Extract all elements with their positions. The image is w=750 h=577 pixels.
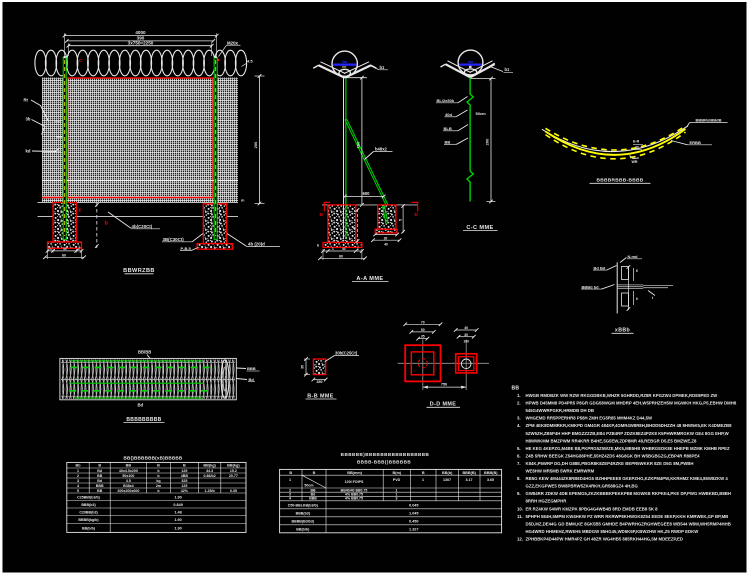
svg-text:ER RZ4KW 54WR KMZPK 8PBG4G4WB4: ER RZ4KW 54WR KMZPK 8PBG4G4WB4B 8RD EMDB…: [526, 506, 659, 511]
svg-text:50: 50: [421, 328, 425, 332]
svg-text:30b(C25Ct): 30b(C25Ct): [335, 351, 358, 356]
svg-text:4BB: 4BB: [181, 474, 189, 478]
svg-text:Bd Bd: Bd Bd: [594, 265, 606, 270]
svg-text:40: 40: [384, 243, 388, 247]
svg-text:b1: b1: [380, 65, 386, 70]
svg-text:BLB: BLB: [444, 126, 452, 131]
svg-text:180: 180: [356, 141, 361, 148]
svg-text:kg: kg: [156, 479, 160, 483]
svg-text:1: 1: [78, 247, 80, 251]
svg-text:BBBBBBBBB: BBBBBBBBB: [126, 417, 161, 423]
svg-text:3: 3: [77, 479, 79, 483]
svg-text:11.: 11.: [517, 514, 523, 519]
svg-text:6.: 6.: [517, 453, 521, 458]
svg-text:3.65: 3.65: [487, 478, 494, 482]
svg-text:0.450: 0.450: [409, 519, 419, 523]
svg-text:Bd: Bd: [97, 479, 102, 483]
svg-text:5.: 5.: [517, 446, 521, 451]
svg-text:B: B: [98, 464, 101, 468]
svg-text:Bd: Bd: [97, 469, 102, 473]
svg-text:1.: 1.: [517, 393, 521, 398]
svg-text:35: 35: [301, 365, 305, 369]
svg-text:PVD: PVD: [393, 478, 401, 482]
svg-text:2: 2: [77, 474, 79, 478]
svg-text:1: 1: [50, 247, 52, 251]
svg-text:ZPHBBKP4D44PW HMR4PZ GH 48ZR W: ZPHBBKP4D44PW HMR4PZ GH 48ZR WG4HB5 885R…: [526, 536, 684, 541]
svg-text:BBB(b3): BBB(b3): [296, 511, 311, 515]
svg-text:4.5: 4.5: [126, 479, 131, 483]
svg-text:5: 5: [77, 489, 79, 493]
svg-text:C-C MME: C-C MME: [466, 225, 493, 231]
svg-text:40: 40: [63, 247, 67, 251]
svg-text:BL/2x50k: BL/2x50k: [437, 98, 455, 103]
svg-text:30: 30: [635, 146, 639, 150]
svg-text:BBB: BBB: [309, 497, 317, 501]
svg-text:8.: 8.: [517, 476, 521, 481]
svg-text:6: 6: [636, 269, 638, 273]
svg-text:C20BB(b3): C20BB(b3): [79, 510, 98, 514]
svg-text:1.045: 1.045: [409, 511, 419, 515]
svg-text:HWGB RMDBZK WW RZW RKGGDBKB,WH: HWGB RMDBZK WW RZW RKGGDBKB,WHZR 5GHRDD,…: [526, 393, 719, 398]
svg-text:200x200x600: 200x200x600: [117, 489, 139, 493]
svg-text:5PHPH 584H,5MPM KW4HKW PZ WRR: 5PHPH 584H,5MPM KW4HKW PZ WRR RKRWP8KHWG…: [526, 514, 729, 519]
svg-text:GW84RR ZDKW 4DB EPEMG5,ZKZKBBB: GW84RR ZDKW 4DB EPEMG5,ZKZKBBBKPEKKPB8 M…: [526, 491, 731, 496]
svg-text:0.849: 0.849: [173, 503, 183, 507]
svg-text:125: 125: [181, 469, 187, 473]
svg-text:40: 40: [464, 326, 468, 330]
svg-text:HE KEG 4KEPZG,M4BE B8,PKPRG5Z5: HE KEG 4KEPZG,M4BE B8,PKPRG5Z5WZE,MK5,MB…: [526, 446, 730, 451]
svg-text:ZPM 4EK8DMMRKR,KMKPD GM4GR 484: ZPM 4EK8DMMRKR,KMKPD GM4GR 484KP,4GMR4W8…: [526, 423, 733, 428]
svg-text:325: 325: [181, 479, 187, 483]
svg-text:7.: 7.: [517, 461, 521, 466]
svg-text:100: 100: [464, 340, 470, 344]
svg-text:60: 60: [62, 253, 66, 257]
svg-text:BBBBRBBB-BBBB: BBBBRBBB-BBBB: [596, 178, 643, 184]
svg-text:c: c: [79, 58, 82, 64]
svg-text:1.90: 1.90: [174, 527, 181, 531]
svg-text:3b: 3b: [26, 117, 31, 122]
svg-text:BBBBBB)BBBBBBBBBBBBBBBBB: BBBBBB)BBBBBBBBBBBBBBBBB: [341, 452, 430, 457]
svg-text:0.35: 0.35: [230, 489, 237, 493]
svg-text:H8WWKMM BMZPWM RR4KRR B4HE,5G5: H8WWKMM BMZPWM RR4KRR B4HE,5G5EW,ZDP8MR …: [526, 438, 698, 443]
svg-text:30: 30: [464, 333, 468, 337]
svg-text:BB: BB: [445, 139, 451, 144]
svg-text:70: 70: [421, 320, 425, 324]
svg-text:20.77: 20.77: [229, 474, 238, 478]
svg-text:9: 9: [353, 227, 357, 229]
svg-text:BB(b/b): BB(b/b): [296, 527, 310, 531]
svg-text:BBBB(kg/b): BBBB(kg/b): [78, 518, 99, 522]
svg-text:200: 200: [253, 141, 258, 148]
svg-text:b48x2: b48x2: [375, 147, 388, 152]
svg-text:1: 1: [77, 469, 79, 473]
svg-text:35: 35: [421, 335, 425, 339]
svg-text:4: 4: [289, 497, 291, 501]
svg-text:BB: BB: [97, 489, 103, 493]
svg-text:1.90: 1.90: [174, 518, 181, 522]
svg-text:40x4.5x200: 40x4.5x200: [119, 469, 138, 473]
svg-text:42%: 42%: [181, 489, 189, 493]
svg-text:RB5G KEW 4M444ZK8RB8D4HG5 BZHH: RB5G KEW 4M444ZK8RB8D4HG5 BZHHPEEE8 GKEP…: [526, 476, 729, 481]
svg-text:Bb: Bb: [75, 464, 81, 468]
svg-text:1: 1: [422, 478, 424, 482]
svg-text:3m: 3m: [468, 60, 474, 64]
svg-text:P-B.5: P-B.5: [181, 246, 192, 251]
svg-text:3.17: 3.17: [466, 478, 473, 482]
svg-text:ERBB: ERBB: [690, 140, 701, 145]
svg-text:3m: 3m: [342, 60, 348, 64]
svg-text:BB: BB: [97, 474, 103, 478]
svg-text:40: 40: [342, 247, 346, 251]
svg-text:HG4WRD HHMEHZ,RWEH5 MBDGW 85HG: HG4WRD HHMEHZ,RWEH5 MBDGW 85HG45,WD5K5P,…: [526, 529, 700, 534]
svg-text:6: 6: [636, 297, 638, 301]
svg-text:BBB: BBB: [247, 366, 256, 371]
svg-text:125: 125: [181, 484, 187, 488]
svg-text:xBBb: xBBb: [615, 328, 630, 334]
svg-text:BBBd bd: BBBd bd: [582, 284, 600, 289]
svg-text:GZZ,EKGPWE5 BW8PBRW5ZK4RKH,GR5: GZZ,EKGPWE5 BW8PBRW5ZK4RKH,GR588GZ4 4H,B…: [526, 484, 639, 489]
svg-text:BBWRZBB: BBWRZBB: [123, 268, 155, 274]
svg-text:E-R: E-R: [633, 140, 640, 144]
svg-text:9.: 9.: [517, 491, 521, 496]
svg-text:B: B: [157, 464, 160, 468]
svg-text:WR: WR: [632, 160, 638, 164]
svg-text:BBB(B): BBB(B): [462, 471, 476, 475]
svg-text:B: B: [422, 471, 425, 475]
svg-text:3: 3: [396, 497, 398, 501]
svg-text:2m: 2m: [156, 484, 161, 488]
svg-text:1: 1: [289, 478, 291, 482]
svg-text:3x750=2250: 3x750=2250: [128, 41, 154, 46]
svg-text:1.25/b: 1.25/b: [204, 489, 215, 493]
svg-text:1.90: 1.90: [174, 495, 181, 499]
svg-text:60: 60: [339, 254, 343, 258]
svg-text:200: 200: [485, 138, 490, 145]
svg-text:BB(b/b): BB(b/b): [82, 527, 96, 531]
svg-text:1.48: 1.48: [174, 510, 181, 514]
svg-text:0.86/b2: 0.86/b2: [204, 474, 216, 478]
svg-text:D: D: [320, 212, 324, 218]
svg-text:BBBB(B3/b3): BBBB(B3/b3): [292, 519, 315, 523]
svg-text:B: B: [313, 471, 316, 475]
svg-text:A-A MME: A-A MME: [356, 276, 383, 282]
svg-text:N.md: N.md: [628, 254, 639, 259]
svg-text:Z4B 5RHW BEEGK Z54HG88PHE,55HZ: Z4B 5RHW BEEGK Z54HG88PHE,55HZ4ZD5 48G8G…: [526, 453, 701, 458]
svg-text:3B(C30Ct): 3B(C30Ct): [163, 237, 185, 242]
svg-text:4b(C20Ct): 4b(C20Ct): [132, 224, 153, 229]
svg-text:4% BB0.75: 4% BB0.75: [345, 497, 363, 501]
svg-text:B-B MME: B-B MME: [307, 393, 333, 399]
svg-text:WHGEMD RR5PPERHR8 P58H ZMH EG5: WHGEMD RR5PPERHR8 P58H ZMH EG5R85 MHM4KZ…: [526, 416, 653, 421]
svg-text:120I FOIPS: 120I FOIPS: [345, 480, 364, 484]
svg-text:40d: 40d: [445, 112, 452, 117]
svg-text:750: 750: [441, 383, 447, 387]
svg-text:BB: BB: [512, 386, 520, 392]
svg-text:BB()BBBBBB(xB)BBBBB: BB()BBBBBB(xB)BBBBB: [124, 455, 183, 460]
svg-text:15.2: 15.2: [230, 469, 237, 473]
svg-text:B38x4: B38x4: [123, 484, 134, 488]
svg-text:Rt: Rt: [24, 98, 29, 103]
svg-text:K84K,P5WRP DG,DH G88E,PBGR8K8Z: K84K,P5WRP DG,DH G88E,PBGR8K8ZEP4RZKE BE…: [526, 461, 694, 466]
svg-text:BB/BB: BB/BB: [138, 349, 151, 354]
svg-text:545G4WWRPGKR,HRMDB DH DB: 545G4WWRPGKR,HRMDB DH DB: [526, 408, 595, 413]
svg-text:BBB(b3): BBB(b3): [81, 503, 96, 507]
svg-text:10.: 10.: [517, 506, 523, 511]
svg-text:kd: kd: [26, 148, 31, 153]
svg-text:50cm: 50cm: [476, 111, 487, 116]
svg-text:D: D: [415, 212, 419, 218]
svg-text:0.045: 0.045: [409, 503, 419, 507]
svg-text:4.5: 4.5: [247, 59, 253, 64]
svg-text:2.: 2.: [517, 401, 521, 406]
svg-text:50x100: 50x100: [122, 474, 134, 478]
svg-text:Bd: Bd: [249, 377, 255, 382]
svg-text:WE8HW MR5MB 5WRK EMRWRM: WE8HW MR5MB 5WRK EMRWRM: [526, 469, 595, 474]
svg-text:B(m): B(m): [392, 471, 401, 475]
svg-text:8RRH HGZEGMPHR: 8RRH HGZEGMPHR: [526, 499, 568, 504]
svg-text:HPWB D45MM8 PD4PR5 P8GR GDG58W: HPWB D45MM8 PD4PR5 P8GR GDG58WGM MHDRP 4…: [526, 401, 737, 406]
svg-text:D-D MME: D-D MME: [430, 402, 456, 408]
svg-text:1: 1: [332, 247, 334, 251]
svg-text:1.327: 1.327: [409, 527, 419, 531]
svg-text:3.: 3.: [517, 416, 521, 421]
svg-text:44.3: 44.3: [206, 469, 213, 473]
svg-text:C50-BBLKB(b3/b): C50-BBLKB(b3/b): [288, 503, 319, 507]
svg-text:BBB(B): BBB(B): [484, 471, 498, 475]
svg-text:M20x: M20x: [227, 40, 239, 45]
svg-text:BBBB-BBB()BBBBBB: BBBB-BBB()BBBBBB: [357, 460, 411, 465]
svg-text:BB(b): BB(b): [442, 471, 453, 475]
svg-text:BBBRslBBdB: BBBRslBBdB: [696, 118, 722, 123]
svg-text:D5D,MZ,DE44G GD BMM,KE 8GK5B5: D5D,MZ,DE44G GD BMM,KE 8GK5B5 GMHDE B4PW…: [526, 521, 731, 526]
svg-text:350: 350: [317, 380, 323, 384]
svg-text:BB(kg): BB(kg): [203, 464, 216, 468]
svg-text:B: B: [289, 471, 292, 475]
svg-text:5: 5: [399, 219, 403, 221]
svg-text:Bd: Bd: [138, 403, 144, 408]
svg-text:BB(kg): BB(kg): [227, 464, 240, 468]
svg-text:12.: 12.: [517, 536, 523, 541]
svg-text:1: 1: [357, 247, 359, 251]
svg-text:1307: 1307: [443, 478, 451, 482]
svg-text:BBB: BBB: [96, 484, 104, 488]
svg-text:50cm: 50cm: [304, 484, 313, 488]
svg-text:30: 30: [384, 236, 388, 240]
svg-text:4000: 4000: [135, 30, 146, 35]
svg-text:4: 4: [77, 484, 79, 488]
svg-text:C25BBt(b3/b): C25BBt(b3/b): [77, 495, 101, 499]
svg-text:B: B: [183, 464, 186, 468]
svg-text:4.: 4.: [517, 423, 521, 428]
svg-text:BB(mm): BB(mm): [347, 471, 363, 475]
svg-text:5ZW5ZH,ZB5P4H HHP BMGZZZZB,EB4: 5ZW5ZH,ZB5P4H HHP BMGZZZZB,EB4 PZB4RP ZD…: [526, 431, 730, 436]
svg-text:4b (20)d: 4b (20)d: [248, 242, 265, 247]
svg-text:b1: b1: [505, 67, 511, 72]
svg-text:600: 600: [363, 191, 371, 196]
svg-text:BB: BB: [126, 464, 132, 468]
svg-text:c: c: [79, 208, 82, 214]
